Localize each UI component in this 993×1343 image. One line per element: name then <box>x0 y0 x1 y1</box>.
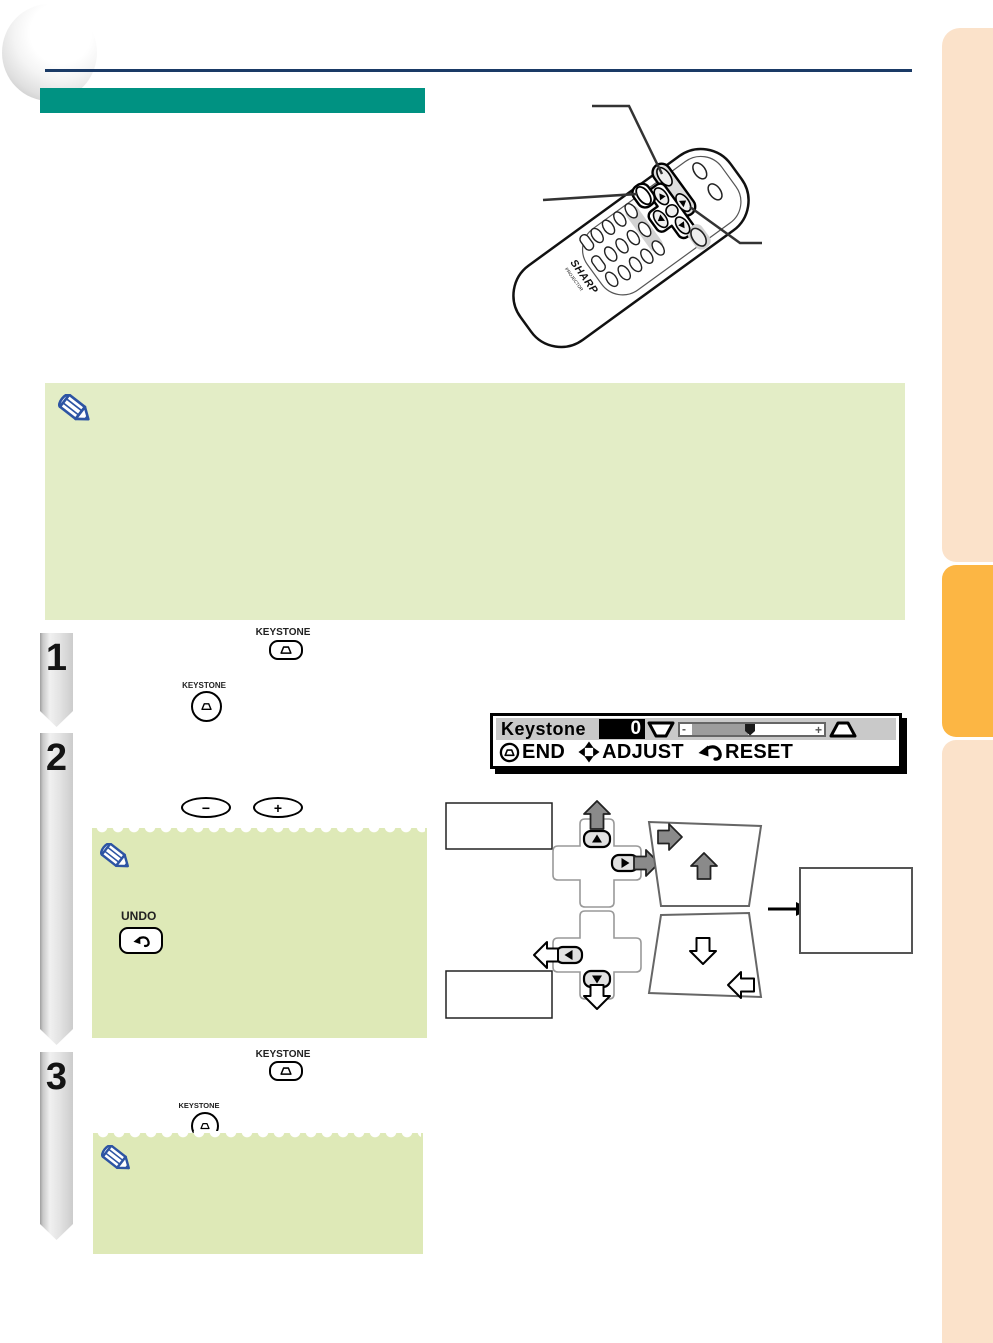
step-marker-2: 2 <box>40 733 73 1045</box>
adjust-arrows-icon <box>578 741 600 763</box>
osd-title: Keystone <box>496 719 586 740</box>
sidebar-section-tab <box>942 565 993 737</box>
osd-value: 0 <box>599 719 645 739</box>
note-scalloped-edge <box>94 826 425 835</box>
pencil-note-icon <box>58 394 94 430</box>
keystone-button-label: KEYSTONE <box>253 627 313 638</box>
note-box-large <box>45 383 905 620</box>
osd-slider: - + <box>678 722 826 737</box>
osd-row-slider: Keystone 0 - + <box>496 718 896 740</box>
remote-control-illustration: SHARP PROJECTOR <box>498 95 798 365</box>
undo-arrow-icon <box>132 934 151 948</box>
sidebar-strip-top <box>942 28 993 562</box>
keystone-wide-top-icon <box>647 720 675 739</box>
slider-plus-label: + <box>815 723 822 737</box>
slider-fill <box>692 724 748 735</box>
step-number: 1 <box>40 637 73 680</box>
keystone-trapezoid-icon <box>278 1066 294 1076</box>
note-box-step3 <box>93 1133 423 1254</box>
result-screen <box>800 868 912 953</box>
keystone-wide-bottom-icon <box>829 720 857 739</box>
reset-arrow-icon <box>697 742 723 762</box>
pencil-note-icon <box>101 1145 134 1178</box>
undo-button-label: UNDO <box>121 909 156 923</box>
osd-adjust-label: ADJUST <box>602 741 684 764</box>
screen-lower-keystone <box>649 913 761 998</box>
keystone-circle-icon <box>499 742 520 763</box>
keystone-button-label: KEYSTONE <box>176 681 232 690</box>
keystone-trapezoid-icon <box>199 702 214 711</box>
keystone-trapezoid-icon <box>278 645 294 655</box>
slider-minus-label: - <box>682 722 686 736</box>
pencil-note-icon <box>100 843 133 876</box>
decorative-sphere <box>2 4 97 101</box>
keystone-button-pill <box>269 640 303 660</box>
manual-page: SHARP PROJECTOR 1 2 3 KEYSTONE KEYSTONE … <box>0 0 993 1343</box>
step-number: 2 <box>40 737 73 780</box>
osd-reset-label: RESET <box>725 741 793 764</box>
osd-row-help: END ADJUST RESET <box>496 740 896 764</box>
remote-body <box>499 134 763 361</box>
callout-line-keystone <box>592 106 662 174</box>
osd-end-label: END <box>522 741 565 764</box>
minus-button: − <box>181 797 231 818</box>
keystone-osd: Keystone 0 - + END <box>490 713 902 769</box>
label-box-top <box>446 803 552 849</box>
sidebar-strip-bottom <box>942 740 993 1343</box>
keystone-button-pill <box>269 1061 303 1081</box>
section-title-bar <box>40 88 425 113</box>
plus-button: + <box>253 797 303 818</box>
dpad-up-right <box>553 801 659 907</box>
undo-button <box>119 927 163 954</box>
step-marker-3: 3 <box>40 1052 73 1240</box>
note-scalloped-edge <box>95 1131 421 1140</box>
keystone-button-label: KEYSTONE <box>253 1049 313 1060</box>
label-box-bottom <box>446 971 552 1018</box>
step-number: 3 <box>40 1056 73 1099</box>
header-rule <box>45 69 912 72</box>
screen-upper-keystone <box>649 822 761 906</box>
keystone-button-round <box>191 691 222 722</box>
adjustment-diagram <box>440 795 920 1030</box>
keystone-button-label: KEYSTONE <box>171 1101 227 1110</box>
step-marker-1: 1 <box>40 633 73 727</box>
keystone-trapezoid-icon <box>198 1122 212 1130</box>
